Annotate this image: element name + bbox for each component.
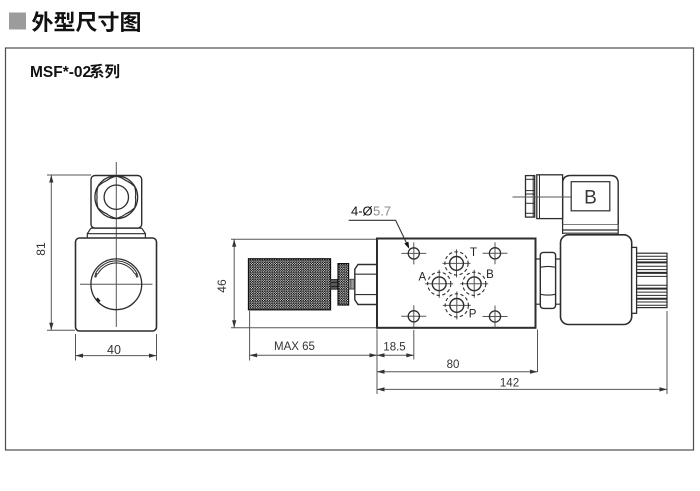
svg-text:MAX 65: MAX 65 — [274, 341, 315, 353]
svg-text:4-Ø: 4-Ø — [351, 203, 373, 218]
svg-text:5.7: 5.7 — [373, 203, 391, 218]
svg-text:A: A — [418, 271, 426, 283]
svg-text:B: B — [486, 269, 494, 281]
svg-text:40: 40 — [107, 343, 121, 357]
svg-text:81: 81 — [34, 242, 48, 256]
svg-text:142: 142 — [500, 377, 519, 389]
svg-text:B: B — [584, 187, 597, 208]
svg-text:80: 80 — [447, 359, 460, 371]
svg-text:P: P — [469, 308, 477, 320]
svg-text:MSF*-02: MSF*-02 — [30, 64, 91, 81]
svg-text:18.5: 18.5 — [383, 342, 405, 354]
svg-text:T: T — [470, 247, 477, 259]
svg-text:46: 46 — [215, 279, 229, 293]
